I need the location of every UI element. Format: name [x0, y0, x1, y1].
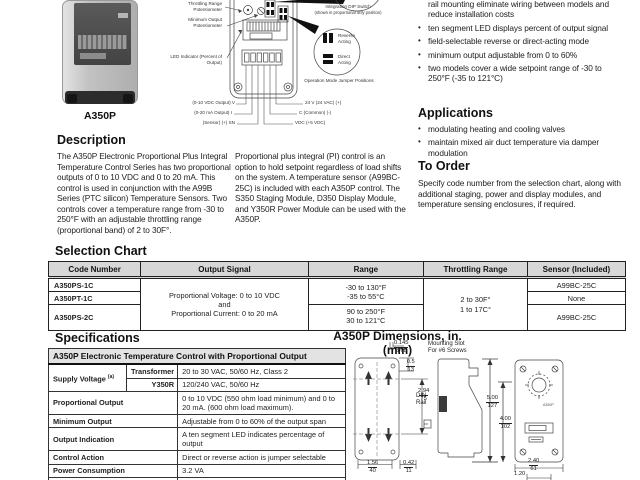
description-body: The A350P Electronic Proportional Plus I…	[57, 151, 237, 235]
wiring-vdc-label: VDC (+5 VDC)	[295, 120, 325, 126]
range-line: -30 to 130°F	[311, 283, 421, 292]
col-header-output-signal: Output Signal	[141, 262, 308, 278]
range-line: 90 to 250°F	[311, 307, 421, 316]
table-header-row: Code Number Output Signal Range Throttli…	[49, 262, 626, 278]
wiring-sensor-label: (Sensor) (+) SN	[160, 120, 235, 126]
spec-value: 3.2 VA	[178, 464, 346, 477]
sensor-cell: None	[527, 292, 625, 305]
device-foot-right	[123, 94, 133, 103]
footnote-marker: (a)	[108, 374, 114, 380]
dim-in: 1.20	[514, 471, 525, 478]
table-row: A350P Electronic Temperature Control wit…	[49, 349, 346, 365]
mounting-slot-label: Mounting Slot For #6 Screws	[428, 341, 480, 355]
sensor-cell: A99BC-25C	[527, 305, 625, 331]
table-row: Proportional Output 0 to 10 VDC (550 ohm…	[49, 392, 346, 415]
throttling-range-cell: 2 to 30F° 1 to 17C°	[424, 278, 528, 331]
min-output-pot-label: Minimum Output Potentiometer	[180, 17, 222, 28]
specifications-table: A350P Electronic Temperature Control wit…	[48, 348, 346, 480]
supply-voltage-text: Supply Voltage	[53, 374, 106, 383]
dim-width3-fraction: 2.40 61	[528, 458, 539, 472]
table-row: Minimum Output Adjustable from 0 to 60% …	[49, 415, 346, 428]
spec-value: A ten segment LED indicates percentage o…	[178, 428, 346, 451]
throttling-pot-label: Throttling Range Potentiometer	[174, 1, 222, 12]
output-signal-line: Proportional Voltage: 0 to 10 VDC	[143, 291, 305, 300]
range-line: 30 to 121°C	[311, 316, 421, 325]
dim-mm: 40	[368, 467, 377, 475]
product-photo	[62, 0, 138, 104]
selection-chart-heading: Selection Chart	[55, 244, 147, 258]
din-rail-label: DIN Rail	[416, 393, 436, 407]
spec-label: Output Indication	[49, 428, 178, 451]
device-label-chip	[118, 13, 128, 18]
dim-mm: 102	[499, 423, 512, 431]
dip-switch-note: (shown in proportional only position)	[306, 10, 390, 16]
mounting-slot-line2: For #6 Screws	[428, 348, 480, 355]
features-list: rail mounting eliminate wiring between m…	[416, 0, 616, 87]
dim-width4-fraction: 1.20	[514, 471, 525, 478]
dim-mm: 13	[406, 366, 415, 374]
output-signal-line: Proportional Current: 0 to 20 mA	[143, 309, 305, 318]
list-item: field-selectable reverse or direct-actin…	[416, 36, 616, 46]
table-row: Control Action Direct or reverse action …	[49, 451, 346, 464]
spec-value: 120/240 VAC, 50/60 Hz	[178, 378, 346, 391]
dim-in: 1.56	[367, 460, 378, 467]
col-header-throttling-range: Throttling Range	[424, 262, 528, 278]
list-item: modulating heating and cooling valves	[416, 124, 616, 134]
spec-label: Minimum Output	[49, 415, 178, 428]
range-cell: 90 to 250°F 30 to 121°C	[308, 305, 423, 331]
list-item: ten segment LED displays percent of outp…	[416, 23, 616, 33]
product-photo-caption: A350P	[62, 110, 138, 122]
pi-note-paragraph: Proportional plus integral (PI) control …	[235, 151, 407, 225]
dim-in: 0.42	[403, 460, 414, 467]
dim-mm: 3.68	[394, 347, 408, 355]
din-line2: Rail	[416, 400, 436, 407]
wiring-24v-label: 24 V (24 VAC) (+)	[305, 100, 341, 106]
spec-label: Proportional Output	[49, 392, 178, 415]
spec-value: 0 to 10 VDC (550 ohm load minimum) and 0…	[178, 392, 346, 415]
dim-in: 5.00	[487, 395, 498, 402]
list-item: two models cover a wide setpoint range o…	[416, 63, 616, 84]
sensor-cell: A99BC-25C	[527, 278, 625, 292]
spec-label: Control Action	[49, 451, 178, 464]
code-number-cell: A350PT-1C	[49, 292, 141, 305]
wiring-vout-label: (0-10 VDC Output) V	[160, 100, 235, 106]
col-header-sensor: Sensor (Included)	[527, 262, 625, 278]
code-number-cell: A350PS-2C	[49, 305, 141, 331]
selection-chart-table: Code Number Output Signal Range Throttli…	[48, 261, 626, 331]
code-number-cell: A350PS-1C	[49, 278, 141, 292]
table-row: Output Indication A ten segment LED indi…	[49, 428, 346, 451]
wiring-iout-label: (0-20 mA Output) I	[160, 110, 232, 116]
din-line1: DIN	[416, 393, 436, 400]
spec-value: Adjustable from 0 to 60% of the output s…	[178, 415, 346, 428]
col-header-range: Range	[308, 262, 423, 278]
col-header-code-number: Code Number	[49, 262, 141, 278]
list-item: maintain mixed air duct temperature via …	[416, 137, 616, 158]
spec-value: Direct or reverse action is jumper selec…	[178, 451, 346, 464]
led-indicator-label: LED Indicator (Percent of Output)	[168, 54, 222, 65]
output-signal-line: and	[143, 300, 305, 309]
spec-sublabel-y350r: Y350R	[127, 378, 178, 391]
dim-width1-fraction: 1.56 40	[367, 460, 378, 474]
drawing-mini-label: A350P	[543, 403, 554, 407]
jumper-positions-caption: Operation Mode Jumper Positions	[303, 78, 375, 84]
dim-mounting-slot-fraction: 0.145 3.68	[394, 340, 409, 354]
applications-list: modulating heating and cooling valves ma…	[416, 124, 616, 161]
spec-table-title: A350P Electronic Temperature Control wit…	[49, 349, 346, 365]
dip-switch-callout: Integration DIP Switch (shown in proport…	[306, 4, 390, 15]
dim-width2-fraction: 0.42 11	[403, 460, 414, 474]
device-front-panel	[74, 3, 131, 65]
reverse-acting-label: Reverse Acting	[338, 33, 362, 44]
dim-mm: 127	[486, 402, 499, 410]
mounting-slot-line1: Mounting Slot	[428, 341, 480, 348]
dim-mm: 61	[529, 465, 538, 473]
list-item: rail mounting eliminate wiring between m…	[416, 0, 616, 20]
spec-label-supply-voltage: Supply Voltage (a)	[49, 364, 127, 391]
datasheet-page: A350P	[0, 0, 640, 480]
spec-sublabel-transformer: Transformer	[127, 364, 178, 378]
device-led-scale	[78, 35, 127, 49]
output-signal-cell: Proportional Voltage: 0 to 10 VDC and Pr…	[141, 278, 308, 331]
applications-heading: Applications	[418, 106, 493, 120]
throttling-line: 1 to 17C°	[426, 305, 525, 314]
device-nameplate	[80, 53, 106, 59]
range-cell: -30 to 130°F -35 to 55°C	[308, 278, 423, 305]
dim-height2-fraction: 4.00 102	[499, 416, 512, 430]
dim-in: 0.145	[394, 340, 409, 347]
dim-in: 4.00	[500, 416, 511, 423]
range-line: -35 to 55°C	[311, 292, 421, 301]
table-row: A350PS-1C Proportional Voltage: 0 to 10 …	[49, 278, 626, 292]
spec-label: Power Consumption	[49, 464, 178, 477]
specifications-heading: Specifications	[55, 331, 140, 345]
description-heading: Description	[57, 133, 126, 147]
table-row: Power Consumption 3.2 VA	[49, 464, 346, 477]
to-order-heading: To Order	[418, 159, 470, 173]
device-foot-left	[67, 94, 77, 103]
list-item: minimum output adjustable from 0 to 60%	[416, 50, 616, 60]
direct-acting-label: Direct Acting	[338, 54, 362, 65]
table-row: A350PS-2C 90 to 250°F 30 to 121°C A99BC-…	[49, 305, 626, 331]
to-order-body: Specify code number from the selection c…	[418, 178, 630, 210]
dim-mm: 11	[404, 467, 413, 475]
spec-value: 20 to 30 VAC, 50/60 Hz, Class 2	[178, 364, 346, 378]
dim-top-fraction: 0.5 13	[406, 359, 415, 373]
throttling-line: 2 to 30F°	[426, 295, 525, 304]
wiring-common-label: C (Common) (-)	[299, 110, 331, 116]
dim-in: 2.40	[528, 458, 539, 465]
dim-in: 0.5	[407, 359, 415, 366]
table-row: Supply Voltage (a) Transformer 20 to 30 …	[49, 364, 346, 378]
dim-height-fraction: 5.00 127	[486, 395, 499, 409]
